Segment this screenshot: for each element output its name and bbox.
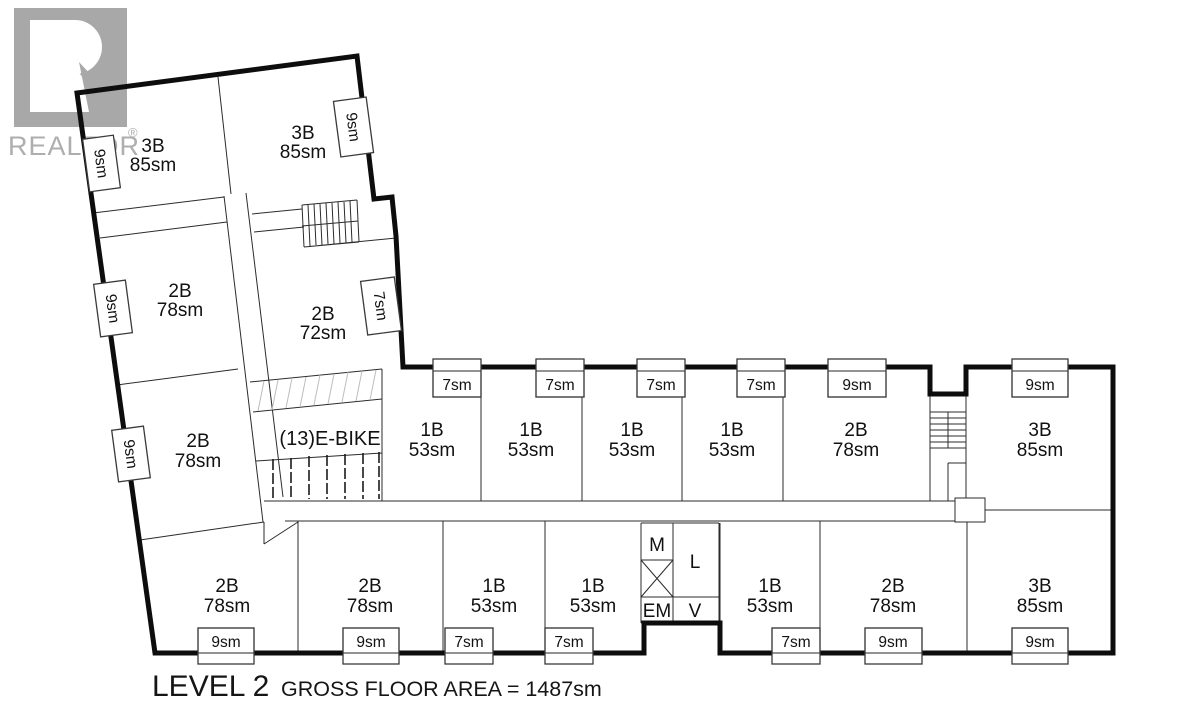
unit-type: 1B [758,576,781,597]
balcony-label: 9sm [356,634,385,651]
balcony: 7sm [545,628,593,664]
balcony: 7sm [737,359,785,397]
level-title: LEVEL 2 [152,670,269,703]
balcony: 7sm [772,628,820,664]
balcony: 7sm [536,359,584,397]
balcony-label: 9sm [878,634,907,651]
unit-labels: 3B 85sm 3B 85sm 2B 78sm 2B 72sm 2B 78sm … [130,123,1063,617]
unit-type: 2B [215,576,238,597]
unit-type: 3B [1028,576,1051,597]
unit-type: 2B [186,431,209,452]
unit-type: 2B [844,420,867,441]
unit-area: 78sm [157,300,203,321]
ebike-room-label: (13)E-BIKE [279,428,380,450]
balcony: 9sm [112,426,151,482]
gross-area-title: GROSS FLOOR AREA = 1487sm [281,677,602,701]
lobby-label: L [690,552,701,573]
unit-type: 2B [881,576,904,597]
unit-type: 1B [519,420,542,441]
balcony: 7sm [433,359,481,397]
balcony: 7sm [361,277,402,335]
unit-area: 78sm [833,440,879,461]
unit-area: 53sm [570,596,616,617]
balcony-label: 7sm [646,377,675,394]
unit-area: 53sm [409,440,455,461]
unit-type: 1B [620,420,643,441]
unit-type: 3B [291,123,314,144]
ebike-hatch [258,370,376,411]
balcony-label: 7sm [554,634,583,651]
unit-type: 1B [420,420,443,441]
balcony: 9sm [83,135,121,192]
unit-type: 2B [168,281,191,302]
unit-area: 78sm [204,596,250,617]
vestibule-label: V [689,601,702,622]
registered-mark: ® [128,125,138,140]
exterior-wall [77,56,1113,653]
balcony-label: 7sm [746,377,775,394]
unit-type: 1B [581,576,604,597]
unit-type: 1B [720,420,743,441]
core-labels: M L EM V [643,535,702,622]
balcony: 9sm [828,359,886,397]
unit-area: 72sm [300,323,346,344]
unit-area: 53sm [747,596,793,617]
unit-area: 78sm [870,596,916,617]
balcony: 9sm [1012,628,1068,664]
unit-area: 53sm [508,440,554,461]
balcony-label: 9sm [1025,634,1054,651]
unit-type: 3B [141,136,164,157]
balcony: 9sm [333,97,373,157]
elec-room-label: EM [643,601,672,622]
title-block: LEVEL 2 GROSS FLOOR AREA = 1487sm [152,670,602,703]
balcony-label: 7sm [781,634,810,651]
unit-type: 3B [1028,420,1051,441]
balcony: 9sm [865,628,922,664]
unit-type: 2B [311,304,334,325]
balcony: 9sm [343,628,399,664]
unit-area: 53sm [609,440,655,461]
balcony-label: 9sm [1025,377,1054,394]
balcony-label: 9sm [842,377,871,394]
balcony-label: 7sm [545,377,574,394]
unit-area: 85sm [280,142,326,163]
unit-type: 1B [482,576,505,597]
balcony: 9sm [1012,359,1068,397]
unit-area: 53sm [471,596,517,617]
floor-plan-canvas: REALTOR ® 9sm 9sm 9sm 7sm 9sm 7sm [0,0,1188,720]
corridor-end-box [955,498,985,522]
balcony-label: 7sm [454,634,483,651]
unit-area: 85sm [1017,440,1063,461]
unit-area: 85sm [1017,596,1063,617]
realtor-brand-text: REALTOR [8,131,140,161]
unit-type: 2B [358,576,381,597]
unit-area: 85sm [130,155,176,176]
balcony: 7sm [637,359,685,397]
unit-area: 53sm [709,440,755,461]
mech-room-label: M [649,535,665,556]
floor-plan-page: REALTOR ® 9sm 9sm 9sm 7sm 9sm 7sm [0,0,1188,720]
realtor-watermark: REALTOR ® [8,8,140,161]
balcony: 9sm [94,280,133,337]
unit-area: 78sm [175,451,221,472]
balcony-label: 7sm [442,377,471,394]
balcony: 7sm [445,628,493,664]
unit-area: 78sm [347,596,393,617]
balcony: 9sm [198,628,254,664]
balcony-label: 9sm [211,634,240,651]
